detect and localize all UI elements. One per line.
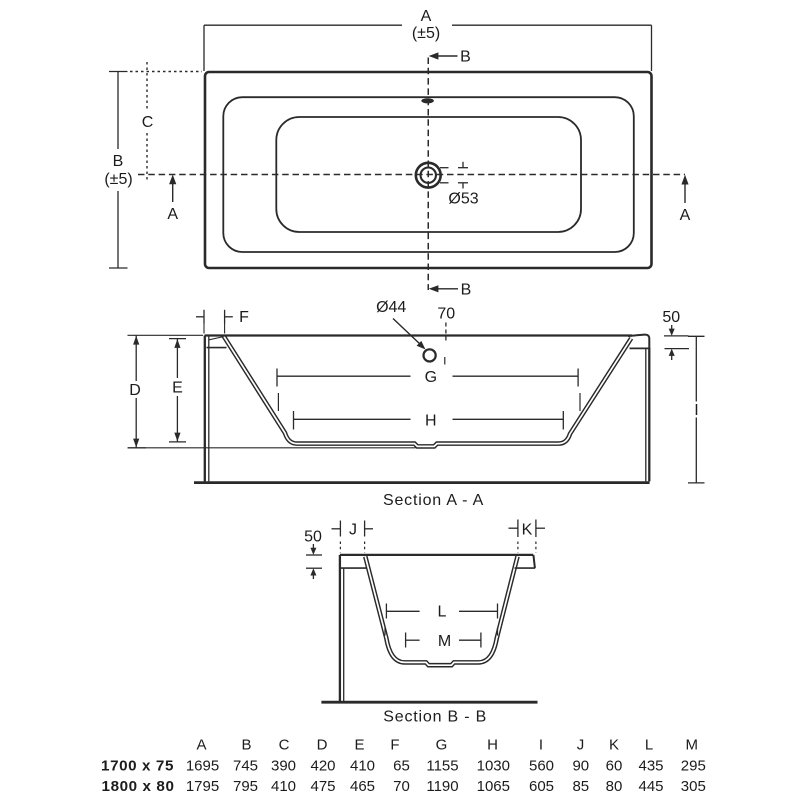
svg-text:G: G [425, 369, 437, 386]
svg-text:745: 745 [233, 757, 258, 774]
svg-text:H: H [425, 413, 437, 430]
svg-text:(±5): (±5) [412, 25, 440, 42]
svg-text:(±5): (±5) [104, 171, 132, 188]
svg-text:410: 410 [350, 757, 375, 774]
svg-text:65: 65 [393, 757, 410, 774]
svg-text:410: 410 [271, 778, 296, 795]
svg-text:F: F [239, 309, 249, 326]
svg-text:D: D [129, 382, 141, 399]
svg-text:420: 420 [310, 757, 335, 774]
svg-text:1795: 1795 [186, 778, 219, 795]
svg-text:465: 465 [350, 778, 375, 795]
svg-text:1065: 1065 [477, 778, 510, 795]
svg-text:80: 80 [606, 778, 623, 795]
svg-text:C: C [279, 737, 290, 754]
svg-text:H: H [487, 737, 498, 754]
svg-text:390: 390 [271, 757, 296, 774]
svg-text:50: 50 [662, 309, 680, 326]
svg-text:1700 x 75: 1700 x 75 [101, 757, 174, 774]
svg-text:A: A [680, 207, 691, 224]
svg-text:1155: 1155 [426, 757, 458, 774]
svg-text:A: A [421, 8, 432, 25]
svg-text:560: 560 [529, 757, 554, 774]
svg-text:1190: 1190 [426, 778, 458, 795]
svg-text:Ø53: Ø53 [448, 190, 478, 207]
svg-text:M: M [438, 633, 451, 650]
svg-text:J: J [349, 521, 357, 538]
svg-text:I: I [694, 402, 698, 419]
svg-text:K: K [522, 521, 533, 538]
svg-text:Ø44: Ø44 [376, 299, 406, 316]
svg-text:M: M [685, 737, 698, 754]
svg-text:B: B [460, 49, 471, 66]
svg-text:795: 795 [233, 778, 258, 795]
svg-text:85: 85 [572, 778, 589, 795]
svg-text:50: 50 [304, 529, 322, 546]
svg-text:60: 60 [606, 757, 623, 774]
svg-text:L: L [438, 603, 447, 620]
svg-text:C: C [142, 114, 154, 131]
svg-text:G: G [436, 737, 448, 754]
svg-text:B: B [241, 737, 251, 754]
svg-text:1800 x 80: 1800 x 80 [102, 778, 175, 795]
svg-text:A: A [196, 737, 206, 754]
svg-text:445: 445 [638, 778, 663, 795]
svg-text:A: A [167, 206, 178, 223]
svg-text:J: J [577, 737, 585, 754]
svg-text:605: 605 [529, 778, 554, 795]
svg-text:F: F [390, 737, 399, 754]
svg-text:B: B [113, 153, 124, 170]
svg-text:90: 90 [572, 757, 589, 774]
svg-text:435: 435 [638, 757, 663, 774]
svg-text:L: L [645, 737, 653, 754]
svg-text:B: B [461, 282, 472, 299]
svg-text:Section B - B: Section B - B [383, 708, 487, 725]
svg-text:K: K [609, 737, 619, 754]
svg-text:1695: 1695 [186, 757, 219, 774]
svg-text:295: 295 [681, 757, 706, 774]
svg-text:70: 70 [393, 778, 410, 795]
svg-text:D: D [317, 737, 328, 754]
svg-text:E: E [172, 380, 183, 397]
svg-text:70: 70 [437, 306, 455, 323]
svg-text:E: E [354, 737, 364, 754]
svg-text:1030: 1030 [477, 757, 510, 774]
svg-text:Section A - A: Section A - A [383, 492, 484, 509]
svg-text:305: 305 [681, 778, 706, 795]
svg-text:I: I [539, 737, 543, 754]
svg-text:475: 475 [310, 778, 335, 795]
